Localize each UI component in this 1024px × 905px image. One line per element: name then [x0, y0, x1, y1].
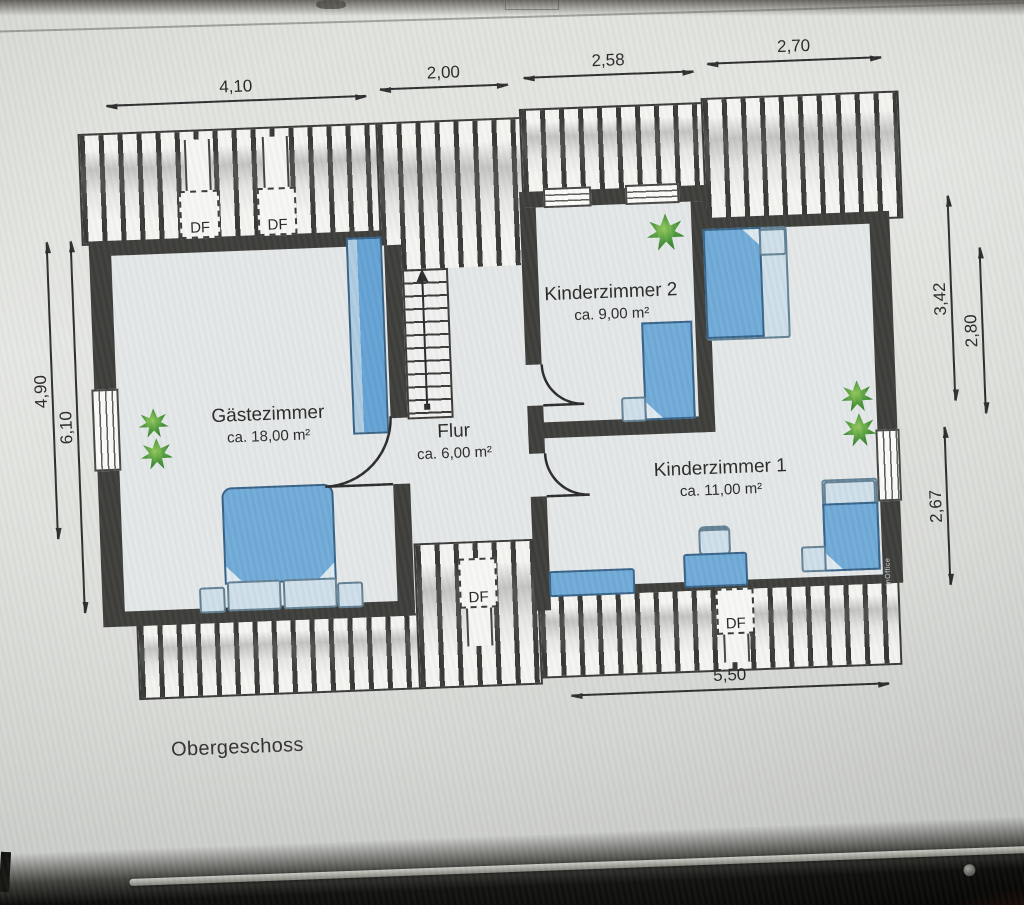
dim-label: 2,67 — [926, 489, 947, 523]
dim-label: 2,70 — [777, 36, 811, 57]
room-name: Flur — [396, 419, 512, 445]
room-label-flur: Flur ca. 6,00 m² — [396, 419, 512, 464]
room-label-gaestezimmer: Gästezimmer ca. 18,00 m² — [160, 400, 376, 449]
dim-label: 5,50 — [713, 665, 747, 686]
dim-label: 2,58 — [591, 50, 625, 71]
dim-label: 2,00 — [426, 62, 460, 83]
dim-label: 3,42 — [930, 282, 951, 316]
door-kinderzimmer1 — [545, 452, 590, 497]
screen-smudge — [316, 0, 346, 9]
bezel-bar — [129, 846, 1024, 886]
dim-label: 4,10 — [219, 76, 253, 97]
dim-label: 6,10 — [56, 411, 77, 445]
door-kinderzimmer2 — [542, 363, 585, 406]
room-label-kinderzimmer2: Kinderzimmer 2 ca. 9,00 m² — [525, 278, 698, 326]
camera-dot — [963, 864, 975, 876]
photographed-screen: DF DF DF DF — [0, 0, 1024, 905]
dim-label: 2,80 — [961, 314, 982, 348]
room-label-kinderzimmer1: Kinderzimmer 1 ca. 11,00 m² — [627, 454, 813, 502]
dim-label: 4,90 — [31, 374, 52, 408]
floor-plan: DF DF DF DF — [0, 0, 1024, 905]
partial-window-outline — [505, 0, 559, 10]
bezel-red-glow — [914, 885, 1024, 905]
